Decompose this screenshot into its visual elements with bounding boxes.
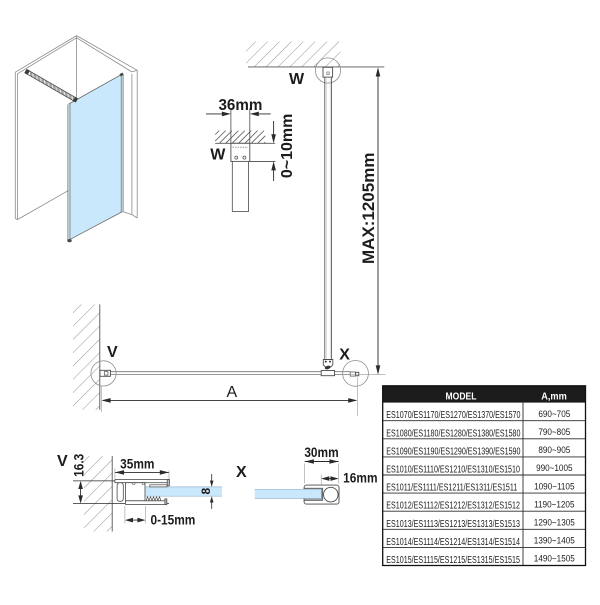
svg-text:1390~1405: 1390~1405 <box>534 535 575 546</box>
svg-text:790~805: 790~805 <box>538 426 570 437</box>
svg-text:1190~1205: 1190~1205 <box>534 499 574 510</box>
svg-text:ES1014/ES1114/ES1214/ES1314/ES: ES1014/ES1114/ES1214/ES1314/ES1514 <box>386 536 520 548</box>
svg-text:MODEL: MODEL <box>446 390 477 402</box>
svg-text:8: 8 <box>199 488 213 495</box>
svg-text:16.3: 16.3 <box>71 454 87 477</box>
svg-text:ES1090/ES1190/ES1290/ES1390/ES: ES1090/ES1190/ES1290/ES1390/ES1590 <box>386 445 520 457</box>
svg-text:0~10mm: 0~10mm <box>279 114 296 179</box>
svg-text:A,mm: A,mm <box>541 391 567 403</box>
svg-text:ES1010/ES1110/ES1210/ES1310/ES: ES1010/ES1110/ES1210/ES1310/ES1510 <box>386 463 520 475</box>
svg-text:30mm: 30mm <box>304 444 338 460</box>
svg-text:A: A <box>226 384 237 401</box>
svg-text:ES1080/ES1180/ES1280/ES1380/ES: ES1080/ES1180/ES1280/ES1380/ES1580 <box>386 427 520 439</box>
svg-text:ES1012/ES1112/ES1212/ES1312/ES: ES1012/ES1112/ES1212/ES1312/ES1512 <box>386 499 520 511</box>
svg-text:X: X <box>339 346 350 363</box>
svg-text:ES1015/ES1115/ES1215/ES1315/ES: ES1015/ES1115/ES1215/ES1315/ES1515 <box>386 554 520 566</box>
svg-text:36mm: 36mm <box>218 97 262 114</box>
svg-text:1090~1105: 1090~1105 <box>534 481 574 492</box>
svg-text:690~705: 690~705 <box>538 408 570 419</box>
svg-text:W: W <box>289 71 305 88</box>
svg-text:1490~1505: 1490~1505 <box>534 553 575 564</box>
svg-text:V: V <box>107 344 118 361</box>
svg-text:1290~1305: 1290~1305 <box>534 517 575 528</box>
svg-text:16mm: 16mm <box>343 470 377 486</box>
svg-text:890~905: 890~905 <box>538 444 570 455</box>
svg-text:0-15mm: 0-15mm <box>151 512 196 528</box>
svg-text:35mm: 35mm <box>120 456 154 472</box>
svg-text:ES1011/ES1111/ES1211/ES1311/ES: ES1011/ES1111/ES1211/ES1311/ES1511 <box>386 481 517 493</box>
svg-text:MAX:1205mm: MAX:1205mm <box>359 153 378 264</box>
svg-text:990~1005: 990~1005 <box>536 463 573 474</box>
svg-text:X: X <box>236 464 247 481</box>
svg-text:V: V <box>57 453 68 470</box>
svg-text:ES1070/ES1170/ES1270/ES1370/ES: ES1070/ES1170/ES1270/ES1370/ES1570 <box>386 409 520 421</box>
svg-text:W: W <box>210 147 226 164</box>
svg-text:ES1013/ES1113/ES1213/ES1313/ES: ES1013/ES1113/ES1213/ES1313/ES1513 <box>386 517 520 529</box>
